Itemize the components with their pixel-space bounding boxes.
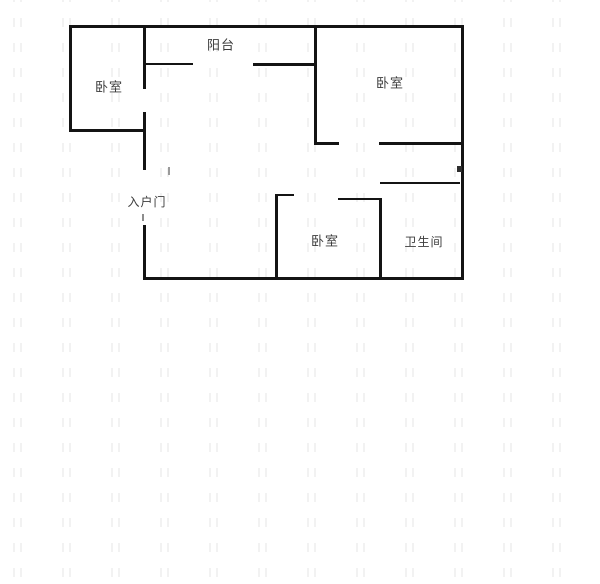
room-label-bedroom-top-right: 卧室 xyxy=(376,78,404,91)
bedroom-bottom-left-wall xyxy=(275,194,278,280)
bedroom-top-right-bottom-wall-left xyxy=(314,142,339,145)
bedroom-bottom-top-wall xyxy=(338,198,382,200)
entry-wall-lower xyxy=(143,225,146,280)
room-label-balcony: 阳台 xyxy=(207,40,235,53)
entry-wall-middle xyxy=(143,112,146,170)
bedroom-bottom-right-wall xyxy=(379,198,382,280)
outer-right-wall xyxy=(461,25,464,280)
hall-door-tick xyxy=(168,167,170,175)
room-label-bedroom-bottom: 卧室 xyxy=(311,236,339,249)
balcony-rail-left xyxy=(144,63,193,65)
outer-left-wall-upper xyxy=(69,25,72,132)
outer-bottom-wall xyxy=(143,277,464,280)
room-label-bathroom: 卫生间 xyxy=(404,236,443,248)
right-wall-door-nub xyxy=(457,166,462,172)
bedroom-top-right-bottom-wall-right xyxy=(379,142,462,145)
balcony-rail-right xyxy=(253,63,316,66)
bedroom-top-left-bottom-wall xyxy=(69,129,146,132)
outer-top-wall xyxy=(69,25,464,28)
room-label-entrance-door: 入户门 xyxy=(127,196,166,208)
room-label-bedroom-top-left: 卧室 xyxy=(95,82,123,95)
floorplan-canvas: 阳台卧室卧室入户门卧室卫生间 xyxy=(0,0,600,584)
entry-wall-upper xyxy=(143,25,146,89)
bathroom-top-wall xyxy=(380,182,460,184)
bedroom-top-right-left-wall xyxy=(314,25,317,145)
entry-door-tick xyxy=(142,214,144,221)
